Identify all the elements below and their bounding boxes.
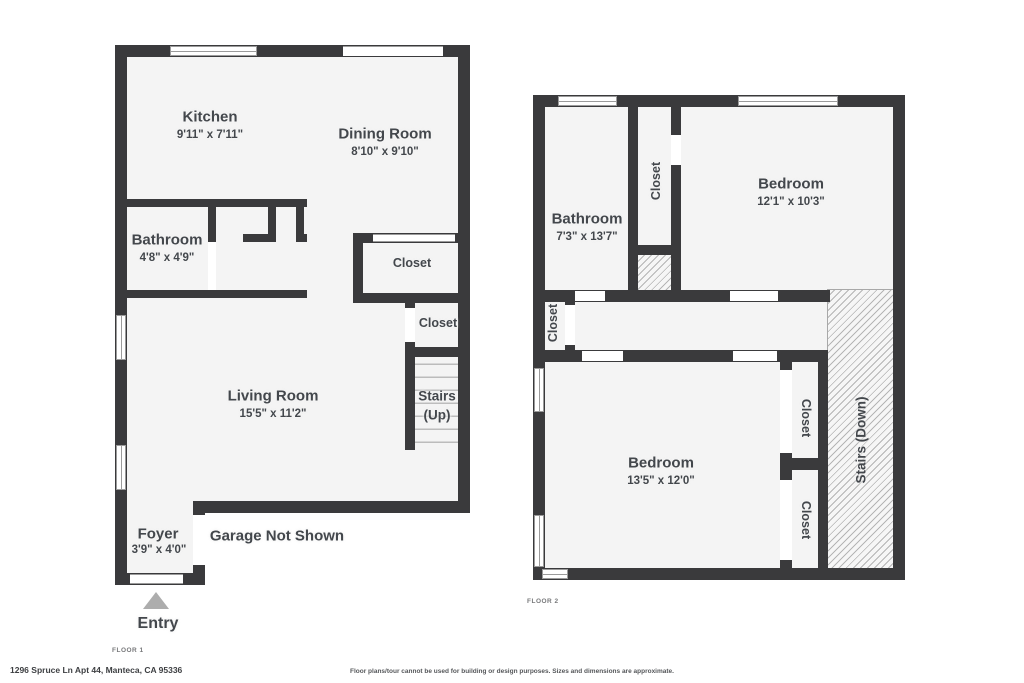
window: [542, 569, 568, 579]
window: [116, 445, 126, 490]
closet-label: Closet: [393, 256, 431, 270]
door-opening: [733, 351, 777, 361]
garage-note: Garage Not Shown: [210, 528, 344, 545]
door-opening: [780, 370, 792, 453]
living-room-label: Living Room: [228, 388, 319, 405]
floor1-tag: FLOOR 1: [112, 647, 144, 654]
bedroom-main-dims: 13'5" x 12'0": [627, 475, 695, 487]
stairs-up-direction: (Up): [424, 408, 451, 423]
wall: [243, 234, 276, 242]
dining-room-dims: 8'10" x 9'10": [351, 146, 419, 158]
door-opening: [193, 515, 205, 565]
door-opening: [582, 351, 623, 361]
door-opening: [671, 135, 681, 165]
living-room-dims: 15'5" x 11'2": [240, 408, 307, 420]
window: [558, 96, 617, 106]
stairs-up-label: Stairs: [418, 389, 456, 404]
closet-opening: [373, 234, 455, 242]
dining-room-label: Dining Room: [338, 126, 431, 143]
entry-label: Entry: [138, 615, 179, 633]
closet-label: Closet: [546, 304, 560, 342]
door-opening: [575, 291, 605, 301]
disclaimer-text: Floor plans/tour cannot be used for buil…: [350, 668, 674, 675]
closet-label: Closet: [419, 316, 457, 330]
window: [738, 96, 838, 106]
wall: [115, 199, 307, 207]
window: [534, 368, 544, 412]
door-opening: [730, 291, 778, 301]
wall: [296, 234, 307, 242]
bedroom-top-dims: 12'1" x 10'3": [757, 196, 825, 208]
foyer-dims: 3'9" x 4'0": [132, 544, 187, 556]
floor2-tag: FLOOR 2: [527, 598, 559, 605]
kitchen-dims: 9'11" x 7'11": [177, 129, 243, 141]
wall: [193, 501, 470, 513]
wall: [628, 105, 638, 302]
closet-label: Closet: [649, 162, 663, 200]
closet-label: Closet: [799, 501, 813, 539]
bedroom-top-label: Bedroom: [758, 176, 824, 193]
bathroom2-dims: 7'3" x 13'7": [556, 231, 617, 243]
foyer-label: Foyer: [138, 526, 179, 543]
bedroom-main-label: Bedroom: [628, 455, 694, 472]
door-opening: [780, 480, 792, 560]
closet-label: Closet: [799, 399, 813, 437]
door-opening: [208, 242, 216, 290]
wall: [533, 95, 545, 580]
wall: [671, 105, 681, 255]
wall: [458, 45, 470, 513]
wall: [208, 207, 216, 242]
stairs-down-label: Stairs (Down): [854, 396, 869, 483]
kitchen-label: Kitchen: [182, 109, 237, 126]
wall: [818, 350, 828, 570]
window: [170, 46, 257, 56]
wall: [533, 568, 905, 580]
wall: [893, 95, 905, 580]
chase-hatch: [638, 255, 671, 290]
bathroom-dims: 4'8" x 4'9": [140, 252, 195, 264]
window: [116, 315, 126, 360]
window: [534, 515, 544, 567]
entry-arrow-icon: [143, 592, 169, 609]
property-address: 1296 Spruce Ln Apt 44, Manteca, CA 95336: [10, 665, 182, 675]
entry-door-opening: [130, 574, 183, 584]
window: [343, 46, 443, 56]
wall: [115, 290, 307, 298]
floor-plan-canvas: Kitchen 9'11" x 7'11" Dining Room 8'10" …: [0, 0, 1024, 683]
door-opening: [565, 305, 575, 345]
bathroom2-label: Bathroom: [552, 211, 623, 228]
bathroom-label: Bathroom: [132, 232, 203, 249]
door-opening: [405, 308, 415, 342]
